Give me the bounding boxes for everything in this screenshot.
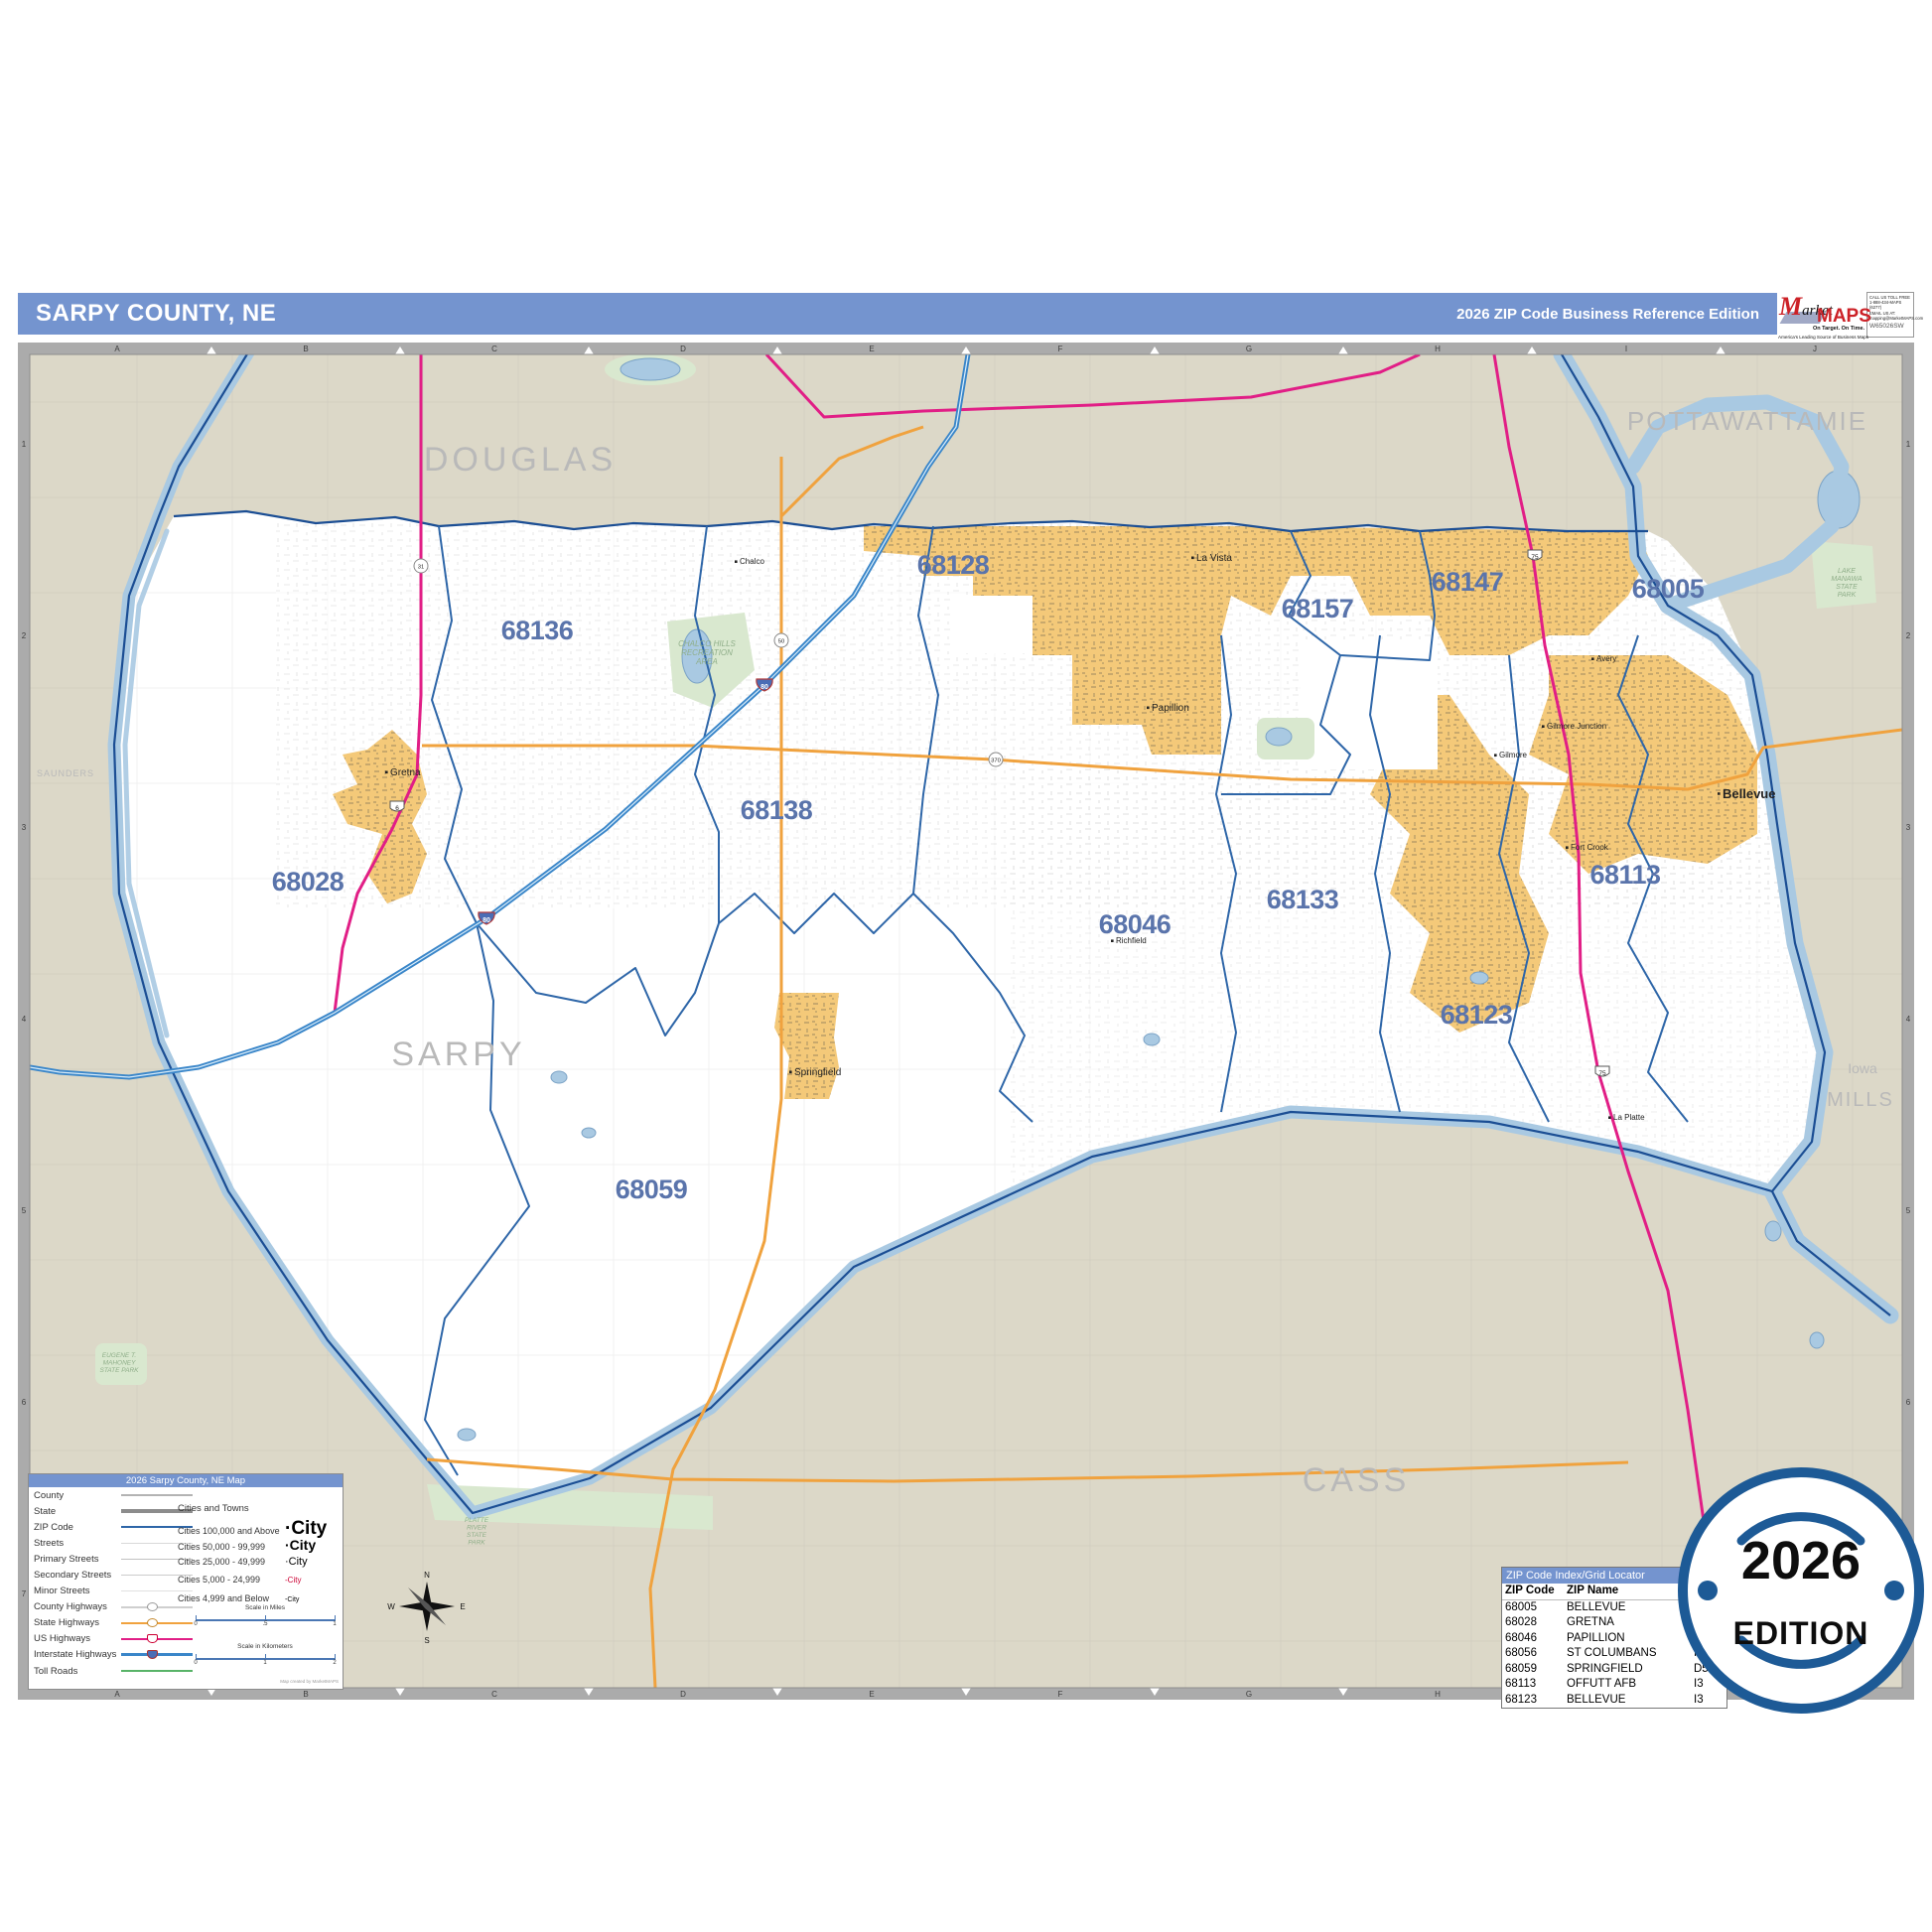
county-shield-icon (147, 1602, 158, 1611)
map-city-label: Gilmore (1499, 751, 1528, 759)
ruler-number: 4 (22, 1015, 27, 1024)
ruler-letter: A (114, 345, 120, 353)
map-zip-label: 68005 (1632, 574, 1705, 604)
scale-tick-label: 2 (333, 1660, 336, 1666)
ruler-number: 6 (1906, 1398, 1911, 1407)
shield-number: 31 (418, 565, 424, 571)
legend-item-label: Secondary Streets (34, 1570, 121, 1581)
map-county-label: MILLS (1827, 1089, 1894, 1111)
edition-badge: 2026 EDITION (1668, 1457, 1932, 1724)
title-bar: SARPY COUNTY, NE 2026 ZIP Code Business … (18, 293, 1777, 335)
logo-maps: MAPS (1817, 306, 1871, 328)
shield-number: 370 (991, 759, 1001, 764)
map-city-label: Fort Crook (1571, 843, 1609, 852)
compass-letter: N (424, 1571, 430, 1580)
map-poster: { "header": { "title": "SARPY COUNTY, NE… (0, 0, 1932, 1932)
badge-ring (1683, 1472, 1919, 1709)
ruler-number: 6 (22, 1398, 27, 1407)
logo-wordmark: Market MAPS On Target. On Time. America'… (1777, 290, 1866, 342)
legend-title: 2026 Sarpy County, NE Map (29, 1474, 343, 1487)
scale-tick-label: 0 (194, 1660, 197, 1666)
logo-contact-box: CALL US TOLL FREE1-888-434-MAPS (6277)EM… (1866, 292, 1914, 338)
logo-contact-line: 1-888-434-MAPS (6277) (1869, 300, 1911, 310)
map-city-label: Springfield (794, 1067, 841, 1078)
map-zip-label: 68046 (1099, 909, 1172, 939)
badge-right-dot (1884, 1581, 1904, 1600)
ruler-number: 5 (1906, 1206, 1911, 1215)
badge-edition: EDITION (1733, 1615, 1869, 1651)
map-county-label: CASS (1303, 1461, 1411, 1499)
ruler-letter: A (114, 1690, 120, 1699)
ruler-letter: C (491, 345, 497, 353)
map-zip-label: 68133 (1267, 885, 1339, 914)
map-city-label: La Vista (1196, 553, 1232, 564)
logo-contact-lines: CALL US TOLL FREE1-888-434-MAPS (6277)EM… (1869, 295, 1911, 321)
ruler-number: 1 (22, 440, 27, 449)
legend-city-class: Cities 5,000 - 24,999-City (178, 1575, 342, 1593)
ruler-letter: B (303, 1690, 308, 1699)
logo-m: M (1779, 292, 1802, 321)
badge-year: 2026 (1741, 1531, 1861, 1590)
legend-city-class: Cities 100,000 and Above·City (178, 1518, 342, 1537)
zip-code-cell: 68046 (1502, 1631, 1567, 1647)
legend-item-label: US Highways (34, 1633, 121, 1644)
map-county-label: SAUNDERS (37, 768, 94, 778)
legend-item-label: County Highways (34, 1601, 121, 1612)
badge-left-dot (1698, 1581, 1718, 1600)
ruler-letter: D (680, 345, 686, 353)
logo-contact-line: mapping@MarketMAPS.com (1869, 316, 1911, 321)
scale-tick-label: .5 (262, 1621, 267, 1627)
legend-city-sample: ·City (285, 1537, 316, 1553)
marketmaps-logo: Market MAPS On Target. On Time. America'… (1777, 290, 1914, 342)
ruler-number: 2 (22, 631, 27, 640)
ruler-number: 3 (22, 823, 27, 832)
map-county-label: Iowa (1848, 1060, 1877, 1076)
ruler-letter: F (1058, 345, 1063, 353)
map-zip-label: 68028 (272, 867, 345, 897)
shield-number: 75 (1598, 1070, 1606, 1077)
shield-number: 75 (1531, 554, 1539, 561)
city-marker-icon (1591, 657, 1594, 660)
scale-tick-label: 1 (263, 1660, 266, 1666)
us-shield-icon (147, 1634, 158, 1643)
zip-code-cell: 68123 (1502, 1693, 1567, 1709)
city-marker-icon (1111, 939, 1114, 942)
interstate-shield-icon (147, 1650, 158, 1659)
ruler-letter: B (303, 345, 308, 353)
legend-item-label: Streets (34, 1538, 121, 1549)
zip-code-cell: 68059 (1502, 1662, 1567, 1678)
scale-tick-label: 1 (333, 1621, 336, 1627)
map-city-label: Richfield (1116, 936, 1147, 945)
shield-number: 6 (395, 805, 399, 812)
zip-code-cell: 68005 (1502, 1600, 1567, 1616)
ruler-letter: G (1246, 345, 1252, 353)
legend-item-label: Interstate Highways (34, 1649, 121, 1660)
ruler-letter: I (1625, 345, 1627, 353)
shield-number: 80 (483, 917, 490, 924)
legend-item-label: ZIP Code (34, 1522, 121, 1533)
city-marker-icon (1566, 846, 1569, 849)
map-zip-label: 68138 (741, 795, 813, 825)
compass-letter: W (387, 1602, 395, 1611)
legend-cities: Cities and Towns Cities 100,000 and Abov… (178, 1503, 342, 1612)
scale-miles: Scale in Miles 0.51 (196, 1604, 335, 1629)
compass-letter: E (460, 1602, 465, 1611)
map-park-label: EUGENE T.MAHONEYSTATE PARK (99, 1352, 139, 1374)
ruler-letter: F (1058, 1690, 1063, 1699)
shield-number: 80 (760, 684, 768, 691)
legend-item-label: Primary Streets (34, 1554, 121, 1565)
ruler-letter: H (1435, 345, 1441, 353)
map-city-label: Chalco (740, 557, 764, 566)
legend-city-class: Cities 25,000 - 49,999·City (178, 1556, 342, 1575)
map-zip-label: 68113 (1589, 860, 1661, 890)
map-zip-label: 68157 (1282, 594, 1354, 623)
city-marker-icon (1147, 707, 1150, 710)
zip-code-cell: 68056 (1502, 1646, 1567, 1662)
logo-subline: America's Leading Source of Business Map… (1778, 335, 1868, 340)
map-zip-label: 68059 (616, 1174, 688, 1204)
legend-item-label: Cities 5,000 - 24,999 (178, 1575, 285, 1585)
legend-line (121, 1494, 193, 1496)
legend-item-label: Cities 25,000 - 49,999 (178, 1557, 285, 1567)
city-marker-icon (1718, 792, 1721, 795)
map-zip-label: 68147 (1432, 567, 1504, 597)
ruler-number: 3 (1906, 823, 1911, 832)
logo-tagline: On Target. On Time. (1813, 326, 1864, 332)
ruler-letter: C (491, 1690, 497, 1699)
legend-item-label: Cities 50,000 - 99,999 (178, 1542, 285, 1552)
map-county-label: SARPY (391, 1035, 525, 1073)
ruler-letter: E (869, 345, 874, 353)
city-marker-icon (385, 771, 388, 774)
map-city-label: Avery (1596, 654, 1616, 663)
city-marker-icon (1608, 1116, 1611, 1119)
shield-number: 50 (778, 639, 784, 645)
city-marker-icon (1542, 725, 1545, 728)
scale-tick-label: 0 (194, 1621, 197, 1627)
ruler-number: 7 (22, 1589, 27, 1598)
ruler-number: 2 (1906, 631, 1911, 640)
edition-label: 2026 ZIP Code Business Reference Edition (1456, 306, 1759, 323)
ruler-number: 1 (1906, 440, 1911, 449)
legend-city-sample: ·City (285, 1556, 308, 1568)
scale-kilometers: Scale in Kilometers 012 (196, 1643, 335, 1668)
ruler-letter: J (1813, 345, 1817, 353)
ruler-letter: H (1435, 1690, 1441, 1699)
map-county-label: POTTAWATTAMIE (1627, 406, 1867, 436)
map-city-label: Gretna (390, 767, 421, 778)
legend-scales: Scale in Miles 0.51 Scale in Kilometers … (196, 1604, 335, 1682)
page-title: SARPY COUNTY, NE (36, 300, 276, 328)
zip-code-cell: 68028 (1502, 1615, 1567, 1631)
map-county-label: DOUGLAS (424, 441, 617, 479)
legend-item-label: Minor Streets (34, 1586, 121, 1596)
map-city-label: Gilmore Junction (1547, 722, 1606, 731)
map-city-label: Bellevue (1723, 786, 1775, 801)
map-zip-label: 68123 (1441, 1000, 1513, 1030)
map-city-label: La Platte (1613, 1113, 1645, 1122)
map-zip-label: 68136 (501, 616, 574, 645)
city-marker-icon (789, 1071, 792, 1074)
ruler-letter: E (869, 1690, 874, 1699)
city-marker-icon (735, 560, 738, 563)
legend-city-sample: -City (285, 1576, 301, 1585)
compass-letter: S (424, 1636, 429, 1645)
ruler-number: 4 (1906, 1015, 1911, 1024)
state-shield-icon (147, 1618, 158, 1627)
city-marker-icon (1191, 557, 1194, 560)
legend-item-label: Cities 100,000 and Above (178, 1526, 285, 1536)
zip-code-cell: 68113 (1502, 1677, 1567, 1693)
city-marker-icon (1494, 754, 1497, 757)
map-city-label: Papillion (1152, 703, 1189, 714)
ruler-letter: D (680, 1690, 686, 1699)
logo-sku: W65026SW (1869, 324, 1911, 329)
legend-item-label: Cities 4,999 and Below (178, 1593, 285, 1603)
legend-city-sample: -City (285, 1596, 299, 1603)
legend-credit: Map created by MarketMAPS (280, 1679, 339, 1684)
map-zip-label: 68128 (917, 550, 990, 580)
legend-line (121, 1670, 193, 1672)
legend-item-label: State (34, 1506, 121, 1517)
legend-item-label: State Highways (34, 1617, 121, 1628)
legend-item-label: Toll Roads (34, 1666, 121, 1677)
ruler-letter: G (1246, 1690, 1252, 1699)
ruler-number: 5 (22, 1206, 27, 1215)
legend-road-item: County (29, 1487, 343, 1503)
legend-cities-header: Cities and Towns (178, 1503, 342, 1514)
legend-item-label: County (34, 1490, 121, 1501)
map-legend: 2026 Sarpy County, NE Map CountyStateZIP… (28, 1473, 344, 1690)
